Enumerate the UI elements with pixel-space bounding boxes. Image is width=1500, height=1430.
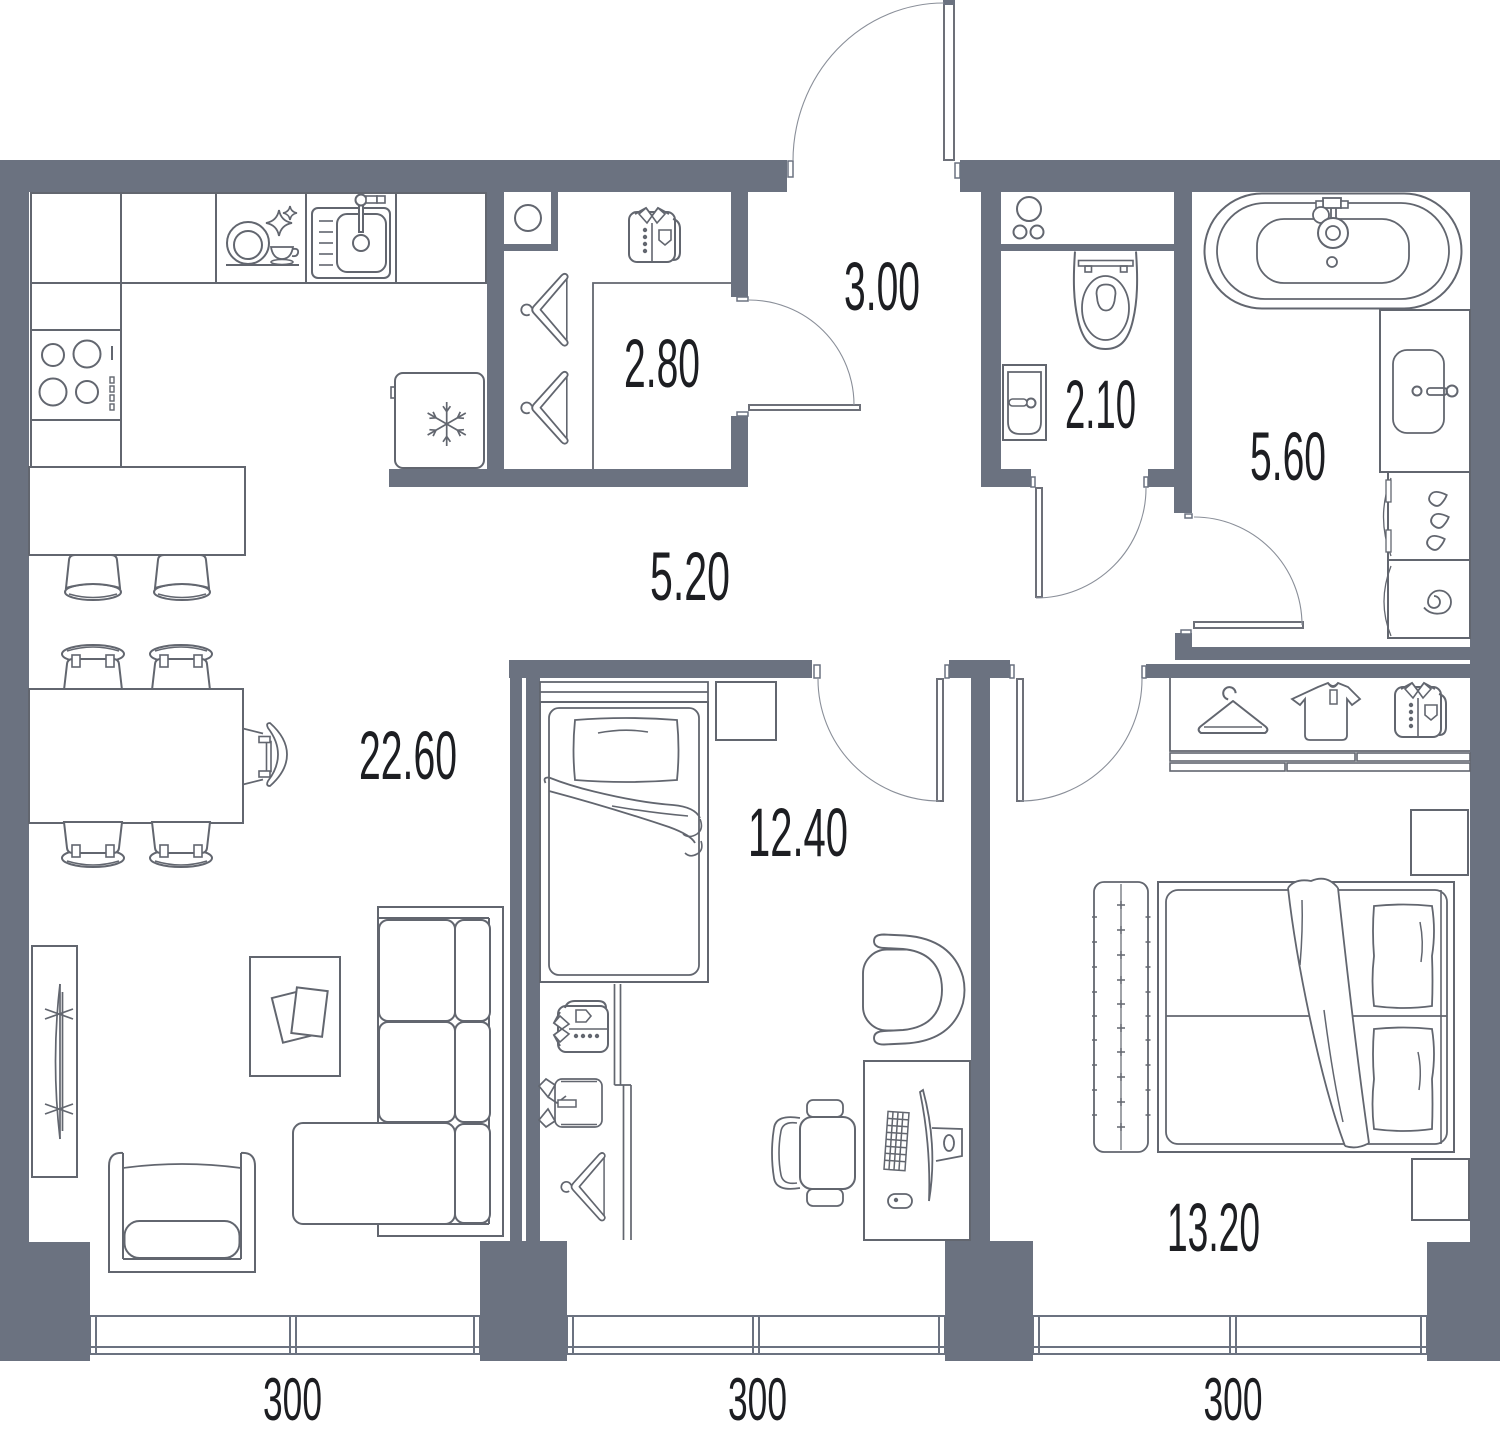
svg-text:2.10: 2.10: [1065, 366, 1136, 443]
svg-text:12.40: 12.40: [748, 794, 848, 871]
svg-text:13.20: 13.20: [1167, 1189, 1260, 1266]
svg-text:300: 300: [1204, 1366, 1263, 1430]
svg-text:300: 300: [728, 1366, 787, 1430]
svg-text:22.60: 22.60: [359, 717, 457, 794]
svg-text:5.20: 5.20: [650, 538, 730, 615]
svg-text:3.00: 3.00: [844, 248, 920, 325]
svg-text:5.60: 5.60: [1250, 418, 1326, 495]
svg-text:2.80: 2.80: [624, 325, 700, 402]
svg-text:300: 300: [263, 1366, 322, 1430]
